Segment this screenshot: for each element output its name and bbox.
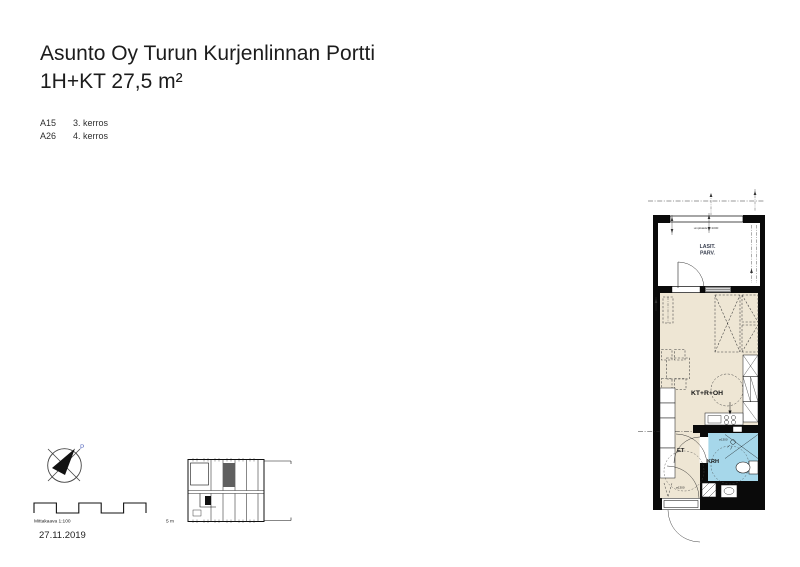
kitchen-counter [705,413,743,425]
compass-icon: P [42,440,92,490]
page-title: Asunto Oy Turun Kurjenlinnan Portti [40,42,375,66]
apartment-floor: 3. kerros [73,118,108,128]
stair-core [205,496,211,505]
entry-door-arc [668,510,700,542]
entry-door-panel [664,501,698,508]
highlighted-unit [223,463,235,487]
apartment-floor: 4. kerros [73,131,108,141]
balcony-door-swing-arc [678,262,704,288]
turning-circle-label-bath: ø1300 [719,438,728,442]
building-continuation-lines [264,461,291,521]
scale-bar: Mittakaava 1:100 5 m [31,498,181,528]
toilet-icon [736,461,758,474]
washing-machine-icon [702,483,716,497]
scale-bar-line [34,503,146,513]
balcony-label-line1: LASIT. [700,244,716,250]
balcony: umpikaide h=1000 LASIT. PARV. [694,226,719,257]
window [705,287,731,293]
compass-needle [52,449,75,476]
balcony-door-opening [672,287,700,293]
bathroom-label: KRH [707,459,719,465]
key-plan [185,452,300,526]
scale-label: Mittakaava 1:100 [34,519,71,525]
drawing-sheet: Asunto Oy Turun Kurjenlinnan Portti 1H+K… [0,0,800,567]
balcony-label-line2: PARV. [700,251,715,257]
living-room-label: KT+R+OH [691,390,723,397]
apartment-type-area: 1H+KT 27,5 m² [40,70,183,94]
compass-north-label: P [80,444,84,451]
railing-note: umpikaide h=1000 [694,226,719,230]
apartment-list: A153. kerros A264. kerros [40,117,108,143]
floor-plan: umpikaide h=1000 LASIT. PARV. [630,185,800,567]
scale-end-label: 5 m [166,519,174,525]
apartment-id: A15 [40,117,73,130]
drawing-date: 27.11.2019 [39,530,86,541]
apartment-id: A26 [40,130,73,143]
balcony-railing [670,216,743,222]
apartment-row: A264. kerros [40,130,108,143]
apartment-row: A153. kerros [40,117,108,130]
sink-icon [721,485,737,498]
wall-vent-box [733,427,742,433]
turning-circle-label-hall: ø1300 [676,486,685,490]
